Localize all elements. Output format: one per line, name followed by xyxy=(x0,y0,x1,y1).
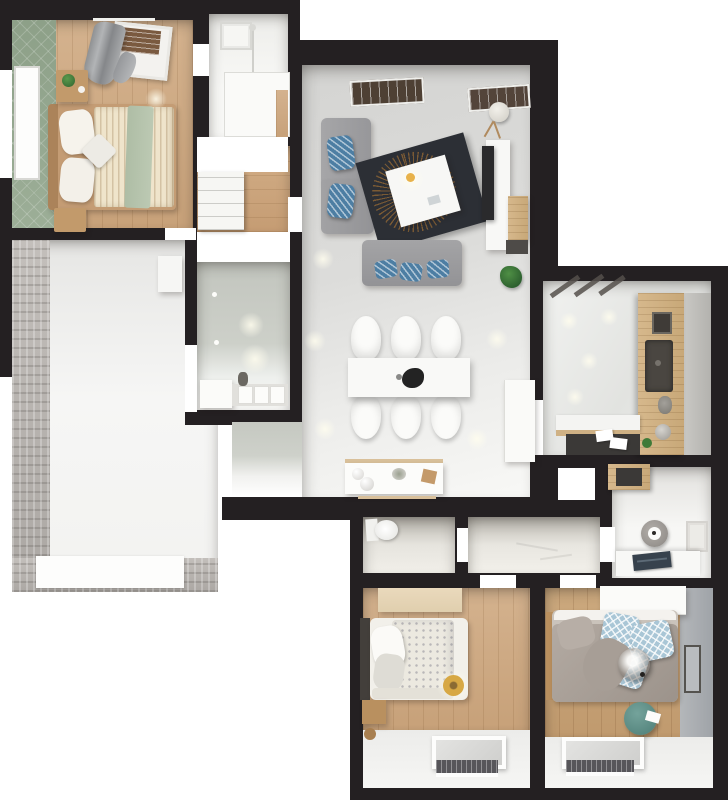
picture-frame xyxy=(684,645,701,693)
dining-chair xyxy=(391,395,421,439)
spot-glow xyxy=(466,428,488,450)
sofa-pillow xyxy=(326,183,356,220)
wall-holder-dot xyxy=(652,531,656,535)
pendant-lamp-glass xyxy=(618,648,650,680)
door-corridor-utility xyxy=(600,527,615,562)
pendant-lamp-cord-dot xyxy=(640,672,645,677)
tv-screen xyxy=(482,146,494,220)
sideboard-sphere xyxy=(360,477,374,491)
door-bedroom1-hallway xyxy=(165,228,196,240)
sink-drain xyxy=(655,360,661,366)
terrace-stone-wall xyxy=(12,240,50,592)
tv-side-cabinet xyxy=(508,196,528,240)
door-corridor-bedroom2 xyxy=(480,575,516,588)
floor-lamp-shade xyxy=(489,102,509,122)
bedroom2-nightstand xyxy=(362,700,386,724)
mirror-light-glow xyxy=(238,312,264,338)
bed2-headboard xyxy=(360,618,370,700)
sofa-two-pillow xyxy=(399,262,423,283)
nightstand-vase xyxy=(78,86,85,93)
spot-glow xyxy=(600,308,618,326)
shower-wood-sliver xyxy=(276,90,288,137)
bedroom1-window xyxy=(14,66,40,180)
spot-glow xyxy=(312,248,334,270)
kettle xyxy=(655,424,671,440)
potted-plant xyxy=(500,266,522,288)
centerpiece-dot xyxy=(396,374,402,380)
sideboard-flower xyxy=(392,468,406,480)
kitchen-faucet xyxy=(658,396,672,414)
hallway-wardrobe xyxy=(198,172,244,230)
spot-glow xyxy=(314,418,336,440)
toilet-bowl xyxy=(375,520,398,540)
kitchen-sink xyxy=(645,340,673,392)
towel-stack xyxy=(238,386,253,404)
candle xyxy=(406,173,415,182)
dining-chair xyxy=(391,316,421,360)
bedroom2-desk xyxy=(378,588,462,612)
terrace-pillar xyxy=(158,256,182,292)
toaster xyxy=(652,312,672,334)
utility-vent xyxy=(686,521,708,552)
bed1-pillow-bottom xyxy=(58,157,96,204)
dining-chair xyxy=(351,316,381,360)
kitchen-plant xyxy=(642,438,652,448)
dining-chair xyxy=(351,395,381,439)
nightstand-plant xyxy=(62,74,75,87)
bathroom-spot xyxy=(212,292,217,297)
tall-white-cabinet xyxy=(504,380,535,462)
island-paper xyxy=(609,437,627,450)
sideboard-wood-cube xyxy=(421,469,437,485)
door-hallway-living xyxy=(288,197,302,232)
bedroom2-deco xyxy=(364,728,376,740)
mirror-light-glow xyxy=(240,344,270,374)
door-corridor-bedroom3 xyxy=(560,575,596,588)
straw-hat xyxy=(443,675,464,696)
bedroom2-radiator-base xyxy=(436,773,498,777)
entry-hall-floor xyxy=(232,422,302,497)
shower-head xyxy=(249,24,256,31)
spot-glow xyxy=(304,330,326,352)
opening-shower-hallway xyxy=(197,137,288,172)
spot-glow xyxy=(145,88,167,110)
bed1-sage-throw xyxy=(124,106,154,209)
tv-dark-shelf xyxy=(506,240,528,254)
window-bedroom1-left xyxy=(0,70,12,178)
bathroom-faucet xyxy=(238,372,248,386)
dining-chair xyxy=(431,395,461,439)
ceiling-vent xyxy=(220,22,252,50)
wall-entry-bottom xyxy=(222,497,302,520)
dining-chair xyxy=(431,316,461,360)
bed1-headboard xyxy=(48,104,58,210)
door-bedroom1-shower xyxy=(193,44,209,76)
door-wc xyxy=(457,528,468,562)
spot-glow xyxy=(580,352,598,370)
opening-terrace xyxy=(185,345,197,412)
terrace-white-inset xyxy=(36,556,184,588)
floor-plan-render xyxy=(0,0,728,800)
towel-stack xyxy=(254,386,269,404)
spot-glow xyxy=(566,388,584,406)
bedroom3-radiator xyxy=(566,760,634,772)
kitchen-backsplash-wall xyxy=(684,293,711,455)
spot-glow xyxy=(560,312,578,330)
bedroom3-radiator-base xyxy=(566,772,634,776)
nightstand-bottom xyxy=(54,208,86,232)
bench-wood-strip xyxy=(358,496,436,499)
bedroom2-radiator xyxy=(436,760,498,773)
vanity-cabinet xyxy=(200,380,232,408)
opening-hallway-bathroom xyxy=(197,232,290,262)
bathroom-spot xyxy=(214,340,219,345)
sofa-two-pillow xyxy=(426,259,450,279)
sofa-pillow xyxy=(326,134,356,171)
window-pane-left xyxy=(349,77,424,107)
spot-glow xyxy=(486,328,508,350)
towel-stack xyxy=(270,386,285,404)
utility-cabinet-front xyxy=(616,468,642,486)
